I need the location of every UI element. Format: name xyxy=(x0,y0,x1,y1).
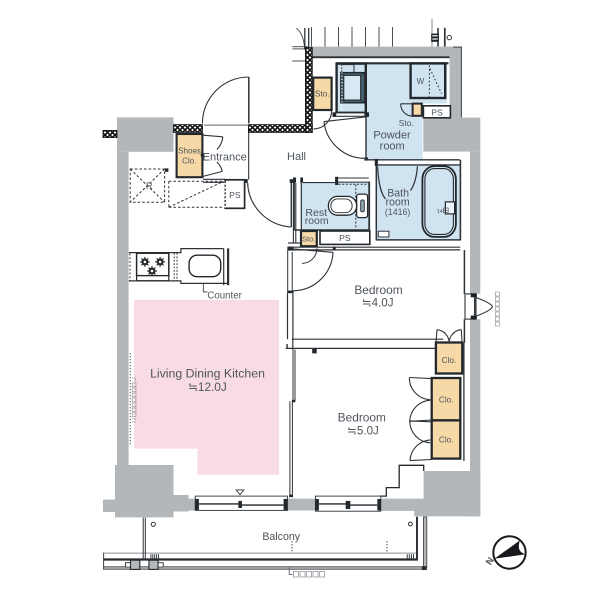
svg-text:Living Dining Kitchen: Living Dining Kitchen xyxy=(150,366,265,380)
svg-text:PS: PS xyxy=(229,190,241,200)
svg-text:PS: PS xyxy=(339,233,351,243)
svg-text:≒12.0J: ≒12.0J xyxy=(188,380,227,394)
svg-text:Balcony: Balcony xyxy=(262,531,300,543)
svg-text:room: room xyxy=(305,215,329,227)
svg-text:Counter: Counter xyxy=(207,290,242,301)
svg-text:Sto.: Sto. xyxy=(302,235,315,244)
svg-text:(1416): (1416) xyxy=(385,207,410,217)
svg-text:PS: PS xyxy=(431,107,443,117)
svg-text:Clo.: Clo. xyxy=(182,157,196,166)
svg-text:≒5.0J: ≒5.0J xyxy=(347,424,379,437)
svg-text:Entrance: Entrance xyxy=(203,152,247,164)
svg-text:≒4.0J: ≒4.0J xyxy=(362,297,394,310)
svg-text:Bedroom: Bedroom xyxy=(338,410,386,424)
svg-text:Hall: Hall xyxy=(287,151,306,163)
svg-text:Bedroom: Bedroom xyxy=(354,283,402,297)
svg-text:Sto.: Sto. xyxy=(399,118,414,128)
svg-text:room: room xyxy=(380,140,405,152)
svg-text:Clo.: Clo. xyxy=(439,395,454,404)
svg-text:Clo.: Clo. xyxy=(439,435,454,444)
svg-text:Sto.: Sto. xyxy=(315,89,330,99)
svg-text:Shoes: Shoes xyxy=(178,146,201,155)
svg-text:W: W xyxy=(417,77,425,86)
svg-text:14: 14 xyxy=(437,209,443,215)
svg-text:R: R xyxy=(146,181,153,191)
svg-text:Clo.: Clo. xyxy=(442,356,457,365)
